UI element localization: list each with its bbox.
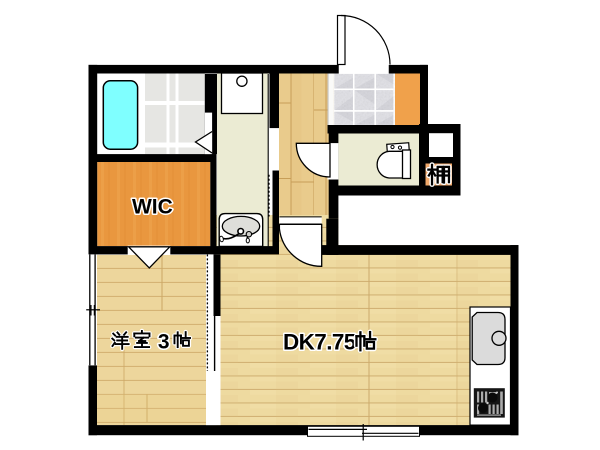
svg-text:3: 3 <box>158 331 170 354</box>
svg-text:DK7.75: DK7.75 <box>283 330 356 355</box>
svg-text:WIC: WIC <box>132 196 173 219</box>
